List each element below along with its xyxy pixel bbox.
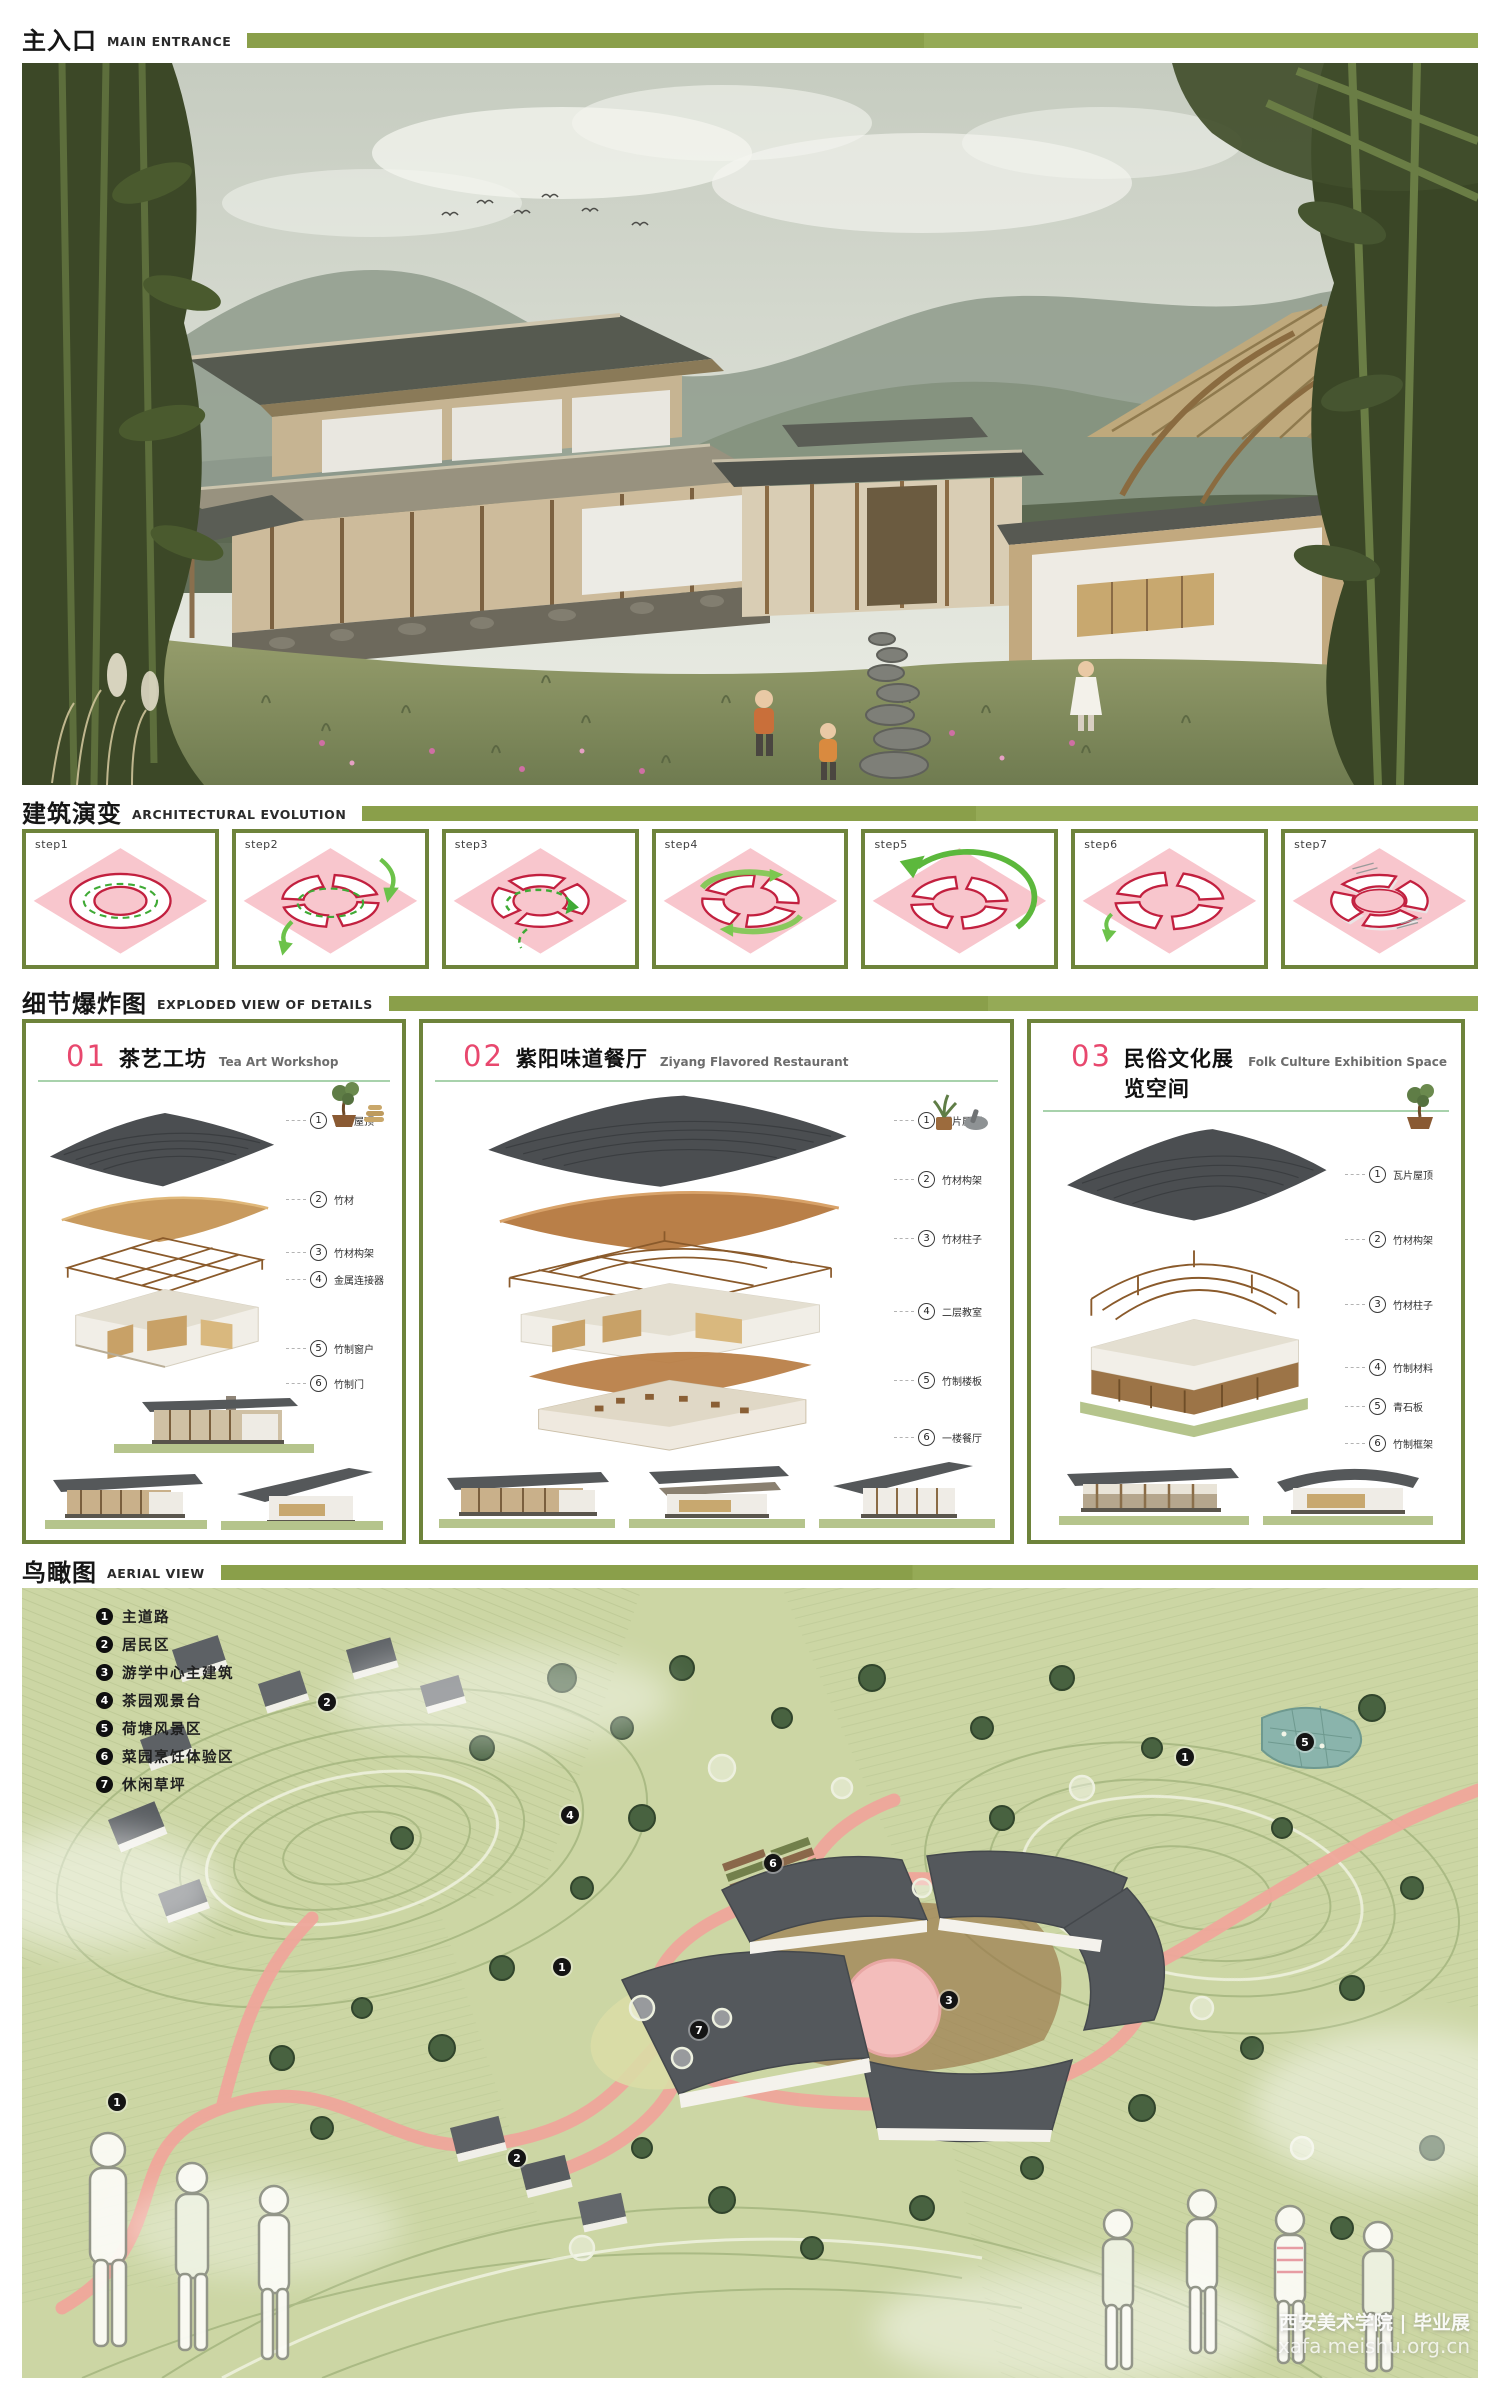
exploded-title-zh: 细节爆炸图: [22, 984, 147, 1019]
prop-bonsai: [1393, 1079, 1445, 1135]
legend-number-icon: 1: [96, 1608, 113, 1625]
panel3-header: 03 民俗文化展览空间 Folk Culture Exhibition Spac…: [1043, 1031, 1449, 1112]
evolution-title-en: ARCHITECTURAL EVOLUTION: [132, 807, 346, 822]
callout-item: 5竹制楼板: [894, 1372, 998, 1389]
evolution-step-5: step5: [861, 829, 1058, 969]
arched-frame-layer: [1091, 1250, 1298, 1319]
leader-line: [286, 1279, 306, 1280]
main-entrance-rendering: [22, 63, 1478, 785]
callout-item: 3竹材柱子: [1345, 1296, 1449, 1313]
panel3-title-zh: 民俗文化展览空间: [1124, 1043, 1236, 1103]
leader-line: [894, 1120, 914, 1121]
panel1-title-zh: 茶艺工坊: [119, 1043, 207, 1073]
bonsai-icon: [1393, 1079, 1445, 1131]
legend-number-icon: 4: [96, 1692, 113, 1709]
leader-line: [894, 1311, 914, 1312]
callout-label: 金属连接器: [334, 1272, 384, 1287]
callout-item: 4金属连接器: [286, 1271, 390, 1288]
panel1-elevations: [38, 1390, 390, 1530]
callout-label: 青石板: [1393, 1399, 1423, 1414]
panel3-callouts: 1瓦片屋顶 2竹材构架 3竹材柱子 4竹制材料 5青石板 6竹制框架: [1345, 1116, 1449, 1452]
callout-item: 6一楼餐厅: [894, 1429, 998, 1446]
aerial-scene: [22, 1588, 1478, 2378]
legend-label: 荷塘风景区: [122, 1718, 202, 1739]
leader-line: [286, 1120, 306, 1121]
callout-item: 4竹制材料: [1345, 1359, 1449, 1376]
step-label: step7: [1294, 838, 1327, 851]
callout-label: 竹制框架: [1393, 1436, 1433, 1451]
legend-label: 茶园观景台: [122, 1690, 202, 1711]
legend-label: 游学中心主建筑: [122, 1662, 234, 1683]
plant-mortar-icon: [928, 1079, 994, 1133]
green-bar: [362, 806, 1478, 821]
leader-line: [286, 1199, 306, 1200]
watermark-line1: 西安美术学院 | 毕业展: [1278, 2313, 1470, 2335]
callout-label: 竹制门: [334, 1376, 364, 1391]
panel2-title-zh: 紫阳味道餐厅: [516, 1043, 648, 1073]
green-bar: [221, 1565, 1478, 1580]
leader-line: [894, 1437, 914, 1438]
legend-item: 4茶园观景台: [96, 1690, 234, 1711]
leader-line: [1345, 1406, 1365, 1407]
panel2-callouts: 1瓦片屋顶 2竹材构架 3竹材柱子 4二层教室 5竹制楼板 6一楼餐厅: [894, 1086, 998, 1454]
panel1-title-en: Tea Art Workshop: [219, 1055, 339, 1069]
callout-item: 4二层教室: [894, 1303, 998, 1320]
callout-label: 竹材柱子: [942, 1231, 982, 1246]
callout-number-icon: 2: [918, 1171, 935, 1188]
tile-roof-layer: [1067, 1129, 1326, 1220]
callout-number-icon: 6: [918, 1429, 935, 1446]
aerial-title-en: AERIAL VIEW: [107, 1566, 205, 1581]
leader-line: [286, 1383, 306, 1384]
legend-label: 居民区: [122, 1634, 170, 1655]
callout-label: 竹材构架: [334, 1245, 374, 1260]
map-marker: 1: [108, 2093, 126, 2111]
step4-diagram: [656, 833, 845, 965]
callout-number-icon: 5: [918, 1372, 935, 1389]
map-marker: 5: [1296, 1733, 1314, 1751]
map-marker: 2: [318, 1693, 336, 1711]
callout-item: 3竹材柱子: [894, 1230, 998, 1247]
evolution-step-6: step6: [1071, 829, 1268, 969]
map-marker: 7: [690, 2021, 708, 2039]
map-marker: 2: [508, 2149, 526, 2167]
panel3-exploded-diagram: [1043, 1116, 1345, 1452]
panel3-title-en: Folk Culture Exhibition Space: [1248, 1055, 1447, 1069]
leader-line: [1345, 1304, 1365, 1305]
legend-item: 2居民区: [96, 1634, 234, 1655]
map-marker: 6: [764, 1854, 782, 1872]
section-header-evolution: 建筑演变 ARCHITECTURAL EVOLUTION: [22, 797, 1478, 825]
legend-label: 主道路: [122, 1606, 170, 1627]
tile-roof-layer: [488, 1096, 846, 1187]
panel3-elevations: [1043, 1452, 1449, 1530]
step1-diagram: [26, 833, 215, 965]
panel3-exploded-svg: [1043, 1116, 1345, 1452]
elevation-thumbnail: [114, 1390, 314, 1454]
callout-label: 二层教室: [942, 1304, 982, 1319]
exploded-title-en: EXPLODED VIEW OF DETAILS: [157, 997, 373, 1012]
panel-ziyang-restaurant: 02 紫阳味道餐厅 Ziyang Flavored Restaurant: [419, 1019, 1014, 1544]
leader-line: [1345, 1239, 1365, 1240]
callout-item: 6竹制框架: [1345, 1435, 1449, 1452]
panel2-header: 02 紫阳味道餐厅 Ziyang Flavored Restaurant: [435, 1031, 998, 1082]
panel2-number: 02: [463, 1039, 504, 1073]
evolution-step-3: step3: [442, 829, 639, 969]
exhibition-volume-layer: [1091, 1319, 1298, 1414]
evolution-steps-row: step1 step2 step3: [22, 829, 1478, 969]
legend-label: 休闲草坪: [122, 1774, 186, 1795]
callout-item: 2竹材构架: [894, 1171, 998, 1188]
panel-tea-art-workshop: 01 茶艺工坊 Tea Art Workshop: [22, 1019, 406, 1544]
main-entrance-title-en: MAIN ENTRANCE: [107, 34, 231, 49]
step-label: step4: [665, 838, 698, 851]
legend-label: 菜园烹饪体验区: [122, 1746, 234, 1767]
elevation-thumbnail: [629, 1454, 805, 1530]
step6-diagram: [1075, 833, 1264, 965]
elevation-thumbnail: [439, 1454, 615, 1530]
step3-diagram: [446, 833, 635, 965]
panel-folk-culture-space: 03 民俗文化展览空间 Folk Culture Exhibition Spac…: [1027, 1019, 1465, 1544]
callout-number-icon: 3: [310, 1244, 327, 1261]
panel1-exploded-diagram: [38, 1086, 286, 1390]
callout-label: 竹制窗户: [334, 1341, 374, 1356]
panel3-body: 1瓦片屋顶 2竹材构架 3竹材柱子 4竹制材料 5青石板 6竹制框架: [1043, 1116, 1449, 1452]
panel1-exploded-svg: [38, 1086, 286, 1390]
leader-line: [894, 1179, 914, 1180]
legend-item: 6菜园烹饪体验区: [96, 1746, 234, 1767]
leader-line: [894, 1380, 914, 1381]
tile-roof-layer: [50, 1113, 274, 1186]
callout-item: 2竹材: [286, 1191, 390, 1208]
exploded-panels-row: 01 茶艺工坊 Tea Art Workshop: [22, 1019, 1478, 1544]
callout-number-icon: 4: [918, 1303, 935, 1320]
callout-number-icon: 6: [1369, 1435, 1386, 1452]
callout-label: 一楼餐厅: [942, 1430, 982, 1445]
green-bar: [389, 996, 1478, 1011]
elevation-thumbnail: [1263, 1452, 1433, 1530]
prop-bonsai-logs: [322, 1079, 386, 1135]
callout-item: 2竹材构架: [1345, 1231, 1449, 1248]
step5-diagram: [865, 833, 1054, 965]
map-marker: 4: [561, 1806, 579, 1824]
leader-line: [1345, 1367, 1365, 1368]
panel1-number: 01: [66, 1039, 107, 1073]
section-header-exploded: 细节爆炸图 EXPLODED VIEW OF DETAILS: [22, 987, 1478, 1015]
step7-diagram: [1285, 833, 1474, 965]
panel1-header: 01 茶艺工坊 Tea Art Workshop: [38, 1031, 390, 1082]
legend-item: 5荷塘风景区: [96, 1718, 234, 1739]
panel3-number: 03: [1071, 1039, 1112, 1073]
step2-diagram: [236, 833, 425, 965]
panel2-title-en: Ziyang Flavored Restaurant: [660, 1055, 849, 1069]
callout-item: 5竹制窗户: [286, 1340, 390, 1357]
main-entrance-title-zh: 主入口: [22, 21, 97, 56]
panel2-elevations: [435, 1454, 998, 1530]
callout-label: 瓦片屋顶: [1393, 1167, 1433, 1182]
evolution-title-zh: 建筑演变: [22, 794, 122, 829]
step-label: step6: [1084, 838, 1117, 851]
elevation-thumbnail: [1059, 1452, 1249, 1530]
evolution-step-4: step4: [652, 829, 849, 969]
leader-line: [894, 1238, 914, 1239]
section-header-aerial: 鸟瞰图 AERIAL VIEW: [22, 1556, 1478, 1584]
callout-label: 竹制材料: [1393, 1360, 1433, 1375]
leader-line: [1345, 1174, 1365, 1175]
classroom-volume-layer: [521, 1284, 819, 1363]
leader-line: [286, 1252, 306, 1253]
watermark: 西安美术学院 | 毕业展 xafa.meishu.org.cn: [1278, 2313, 1470, 2358]
evolution-step-7: step7: [1281, 829, 1478, 969]
callout-number-icon: 3: [918, 1230, 935, 1247]
callout-number-icon: 2: [1369, 1231, 1386, 1248]
panel2-exploded-diagram: [435, 1086, 894, 1454]
map-marker: 1: [1176, 1748, 1194, 1766]
callout-item: 3竹材构架: [286, 1244, 390, 1261]
presentation-board: { "board": { "accent_green": "#8a9f4a", …: [0, 24, 1500, 2402]
legend-number-icon: 6: [96, 1748, 113, 1765]
callout-label: 竹材柱子: [1393, 1297, 1433, 1312]
callout-number-icon: 3: [1369, 1296, 1386, 1313]
aerial-view: 1主道路 2居民区 3游学中心主建筑 4茶园观景台 5荷塘风景区 6菜园烹饪体验…: [22, 1588, 1478, 2378]
callout-item: 5青石板: [1345, 1398, 1449, 1415]
legend-number-icon: 2: [96, 1636, 113, 1653]
panel1-elevation-row: [45, 1460, 383, 1530]
bamboo-sheet-layer: [62, 1198, 268, 1242]
panel2-exploded-svg: [435, 1086, 894, 1454]
callout-label: 竹材: [334, 1192, 354, 1207]
prop-plant-mortar: [928, 1079, 994, 1137]
callout-number-icon: 5: [310, 1340, 327, 1357]
main-entrance-scene: [22, 63, 1478, 785]
legend-number-icon: 5: [96, 1720, 113, 1737]
legend-number-icon: 7: [96, 1776, 113, 1793]
map-marker: 1: [553, 1958, 571, 1976]
step-label: step5: [874, 838, 907, 851]
callout-number-icon: 5: [1369, 1398, 1386, 1415]
elevation-thumbnail: [221, 1460, 383, 1530]
legend-item: 3游学中心主建筑: [96, 1662, 234, 1683]
map-marker: 3: [940, 1991, 958, 2009]
watermark-line2: xafa.meishu.org.cn: [1278, 2335, 1470, 2358]
callout-label: 竹制楼板: [942, 1373, 982, 1388]
callout-label: 竹材构架: [1393, 1232, 1433, 1247]
elevation-thumbnail: [45, 1460, 207, 1530]
evolution-step-1: step1: [22, 829, 219, 969]
panel2-body: 1瓦片屋顶 2竹材构架 3竹材柱子 4二层教室 5竹制楼板 6一楼餐厅: [435, 1086, 998, 1454]
step-label: step1: [35, 838, 68, 851]
legend-item: 1主道路: [96, 1606, 234, 1627]
step-label: step3: [455, 838, 488, 851]
building-volume-layer: [76, 1290, 259, 1367]
callout-label: 竹材构架: [942, 1172, 982, 1187]
step-label: step2: [245, 838, 278, 851]
bonsai-icon: [322, 1079, 386, 1131]
callout-item: 1瓦片屋顶: [1345, 1166, 1449, 1183]
green-bar: [247, 33, 1478, 48]
elevation-thumbnail: [819, 1454, 995, 1530]
section-header-main-entrance: 主入口 MAIN ENTRANCE: [22, 24, 1478, 52]
restaurant-volume-layer: [539, 1380, 806, 1450]
callout-number-icon: 1: [1369, 1166, 1386, 1183]
callout-number-icon: 4: [310, 1271, 327, 1288]
aerial-legend: 1主道路 2居民区 3游学中心主建筑 4茶园观景台 5荷塘风景区 6菜园烹饪体验…: [96, 1606, 234, 1795]
aerial-title-zh: 鸟瞰图: [22, 1553, 97, 1588]
leader-line: [286, 1348, 306, 1349]
legend-number-icon: 3: [96, 1664, 113, 1681]
callout-number-icon: 4: [1369, 1359, 1386, 1376]
leader-line: [1345, 1443, 1365, 1444]
evolution-step-2: step2: [232, 829, 429, 969]
callout-number-icon: 2: [310, 1191, 327, 1208]
legend-item: 7休闲草坪: [96, 1774, 234, 1795]
